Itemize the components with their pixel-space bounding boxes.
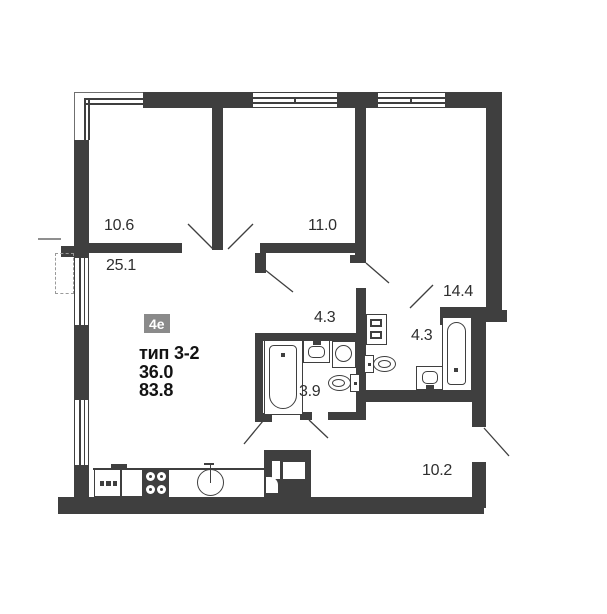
door-swing-icon [244,421,263,444]
floor-plan: 10.6 25.1 11.0 14.4 4.3 4.3 3.9 10.2 4е … [0,0,607,614]
door-swing-icon [228,224,253,249]
door-swing-icon [410,285,433,308]
door-swing-icon [366,263,389,283]
door-swing-icon [309,420,328,438]
door-swing-icon [484,428,509,456]
door-swing-icon [188,224,213,249]
door-swing-icon [259,265,293,292]
door-swings-layer [0,0,607,614]
